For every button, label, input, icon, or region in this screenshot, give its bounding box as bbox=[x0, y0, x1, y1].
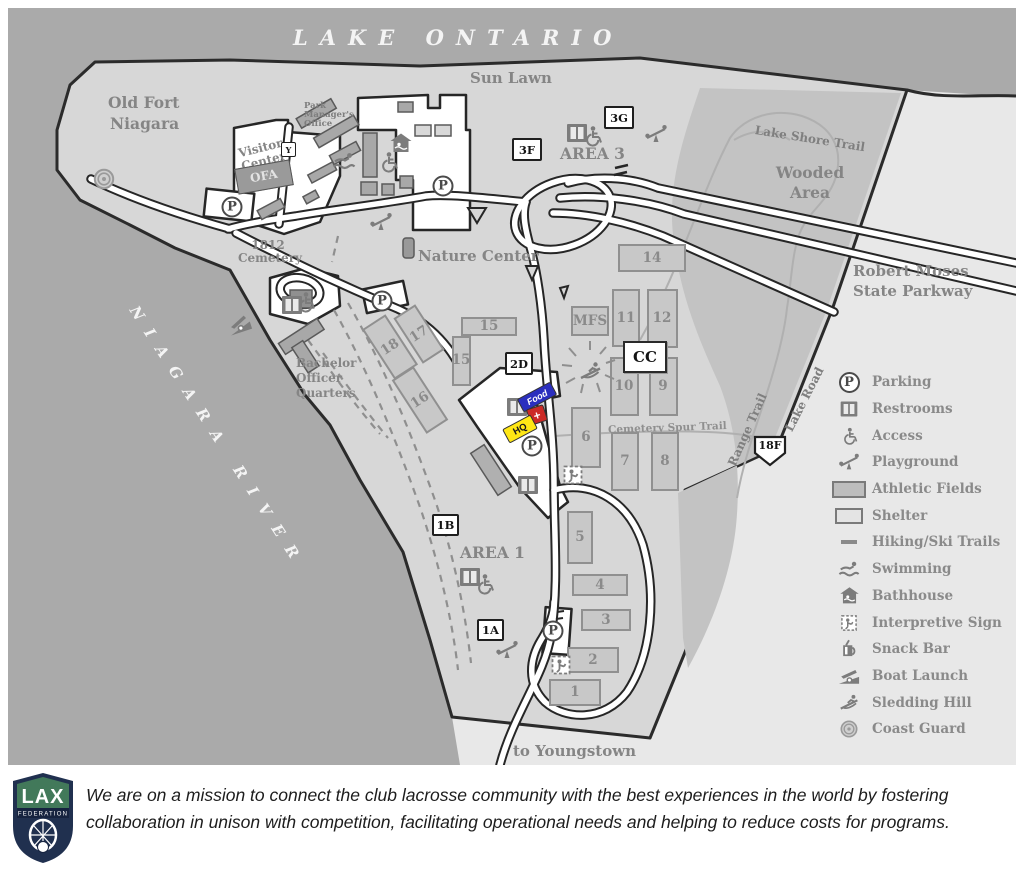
field-number-3: 3 bbox=[601, 612, 610, 628]
snack-bar-icon bbox=[839, 639, 859, 659]
label-wooded-2: Area bbox=[760, 184, 860, 201]
field-number-2: 2 bbox=[588, 652, 597, 668]
label-lake-ontario: LAKE ONTARIO bbox=[293, 26, 623, 49]
area3-restrooms-icon bbox=[567, 124, 587, 142]
field-number-11: 11 bbox=[617, 310, 636, 326]
hiking-ski-trails-icon bbox=[841, 540, 857, 544]
south-restrooms-icon bbox=[518, 476, 538, 494]
legend-item-bathhouse: Bathhouse bbox=[830, 583, 1016, 610]
legend-label: Interpretive Sign bbox=[872, 615, 1002, 631]
legend-item-snack-bar: Snack Bar bbox=[830, 636, 1016, 663]
label-parkway-2: State Parkway bbox=[853, 283, 972, 300]
legend-item-trails: Hiking/Ski Trails bbox=[830, 529, 1016, 556]
field-number-1: 1 bbox=[570, 684, 579, 700]
legend-item-sledding-hill: Sledding Hill bbox=[830, 689, 1016, 716]
field-number-8: 8 bbox=[660, 453, 669, 469]
field-number-6: 6 bbox=[581, 429, 590, 445]
legend-item-parking: P Parking bbox=[830, 369, 1016, 396]
parking-marker-bathhouse: P bbox=[433, 176, 454, 197]
parking-icon: P bbox=[839, 372, 860, 393]
legend-label: Shelter bbox=[872, 508, 927, 524]
legend-item-playground: Playground bbox=[830, 449, 1016, 476]
field-number-15v: 15 bbox=[452, 352, 471, 368]
legend-label: Sledding Hill bbox=[872, 695, 972, 711]
legend-label: Access bbox=[872, 428, 923, 444]
footer: LAX FEDERATION We are on a mission to co… bbox=[0, 765, 1024, 871]
label-to-youngstown: to Youngstown bbox=[513, 743, 636, 760]
label-boq-3: Quarters bbox=[296, 387, 356, 400]
field-number-12: 12 bbox=[653, 310, 672, 326]
legend-label: Parking bbox=[872, 374, 931, 390]
legend-item-athletic-fields: Athletic Fields bbox=[830, 476, 1016, 503]
shelter-swatch bbox=[835, 508, 863, 524]
marker-1a: 1A bbox=[477, 619, 504, 641]
marker-2d: 2D bbox=[505, 352, 533, 375]
bathhouse-icon bbox=[839, 585, 860, 606]
legend-label: Snack Bar bbox=[872, 641, 950, 657]
legend-label: Boat Launch bbox=[872, 668, 968, 684]
mission-statement: We are on a mission to connect the club … bbox=[86, 782, 976, 836]
coast-guard-icon bbox=[839, 719, 859, 739]
marker-3f: 3F bbox=[512, 138, 542, 161]
legend-label: Coast Guard bbox=[872, 721, 966, 737]
parking-marker-hq: P bbox=[522, 436, 543, 457]
legend-item-coast-guard: Coast Guard bbox=[830, 716, 1016, 743]
sledding-hill-icon bbox=[839, 692, 860, 713]
mission-line-1: We are on a mission to connect the club … bbox=[86, 782, 976, 809]
parking-marker-fort: P bbox=[222, 197, 243, 218]
cemetery-restrooms-icon bbox=[282, 296, 302, 314]
label-1812-cemetery-2: Cemetery bbox=[238, 252, 298, 265]
access-icon bbox=[839, 426, 859, 446]
field-number-4: 4 bbox=[595, 577, 604, 593]
legend-label: Playground bbox=[872, 454, 959, 470]
label-ofa: OFA bbox=[249, 168, 278, 186]
label-park-manager-3: Office bbox=[304, 120, 332, 129]
field-number-7: 7 bbox=[620, 453, 629, 469]
park-map-page: LAKE ONTARIO NIAGARA RIVER Sun Lawn Old … bbox=[0, 0, 1024, 871]
logo-wordmark: LAX bbox=[22, 786, 65, 808]
fort-niagara-park-map: LAKE ONTARIO NIAGARA RIVER Sun Lawn Old … bbox=[8, 8, 1016, 765]
map-legend: P Parking Restrooms Access Playground At… bbox=[830, 369, 1016, 743]
interpretive-sign-field6-icon bbox=[565, 467, 582, 484]
label-boq-1: Bachelor bbox=[296, 357, 356, 370]
marker-cc: CC bbox=[623, 341, 667, 373]
interpretive-sign-icon bbox=[839, 613, 859, 633]
playground-icon bbox=[838, 451, 860, 473]
marker-1b: 1B bbox=[432, 514, 459, 536]
legend-item-access: Access bbox=[830, 422, 1016, 449]
logo-subtitle: FEDERATION bbox=[18, 812, 68, 818]
boat-launch-icon bbox=[838, 665, 860, 687]
label-area-1: AREA 1 bbox=[460, 544, 525, 561]
label-sun-lawn: Sun Lawn bbox=[470, 70, 552, 87]
legend-item-restrooms: Restrooms bbox=[830, 396, 1016, 423]
coast-guard-station-icon bbox=[95, 170, 113, 188]
legend-label: Athletic Fields bbox=[872, 481, 982, 497]
label-old-fort-2: Niagara bbox=[110, 115, 179, 132]
restrooms-icon bbox=[839, 399, 859, 419]
field-number-14: 14 bbox=[643, 250, 662, 266]
area1-restrooms-icon bbox=[460, 568, 480, 586]
legend-item-swimming: Swimming bbox=[830, 556, 1016, 583]
label-nature-center: Nature Center bbox=[418, 248, 539, 265]
lax-federation-logo: LAX FEDERATION bbox=[10, 772, 76, 864]
interpretive-sign-field2-icon bbox=[553, 657, 570, 674]
legend-label: Swimming bbox=[872, 561, 951, 577]
legend-label: Bathhouse bbox=[872, 588, 953, 604]
athletic-fields-swatch bbox=[832, 481, 866, 498]
label-boq-2: Officer bbox=[296, 372, 342, 385]
field-number-9: 9 bbox=[658, 378, 667, 394]
legend-item-interpretive-sign: Interpretive Sign bbox=[830, 609, 1016, 636]
legend-label: Hiking/Ski Trails bbox=[872, 534, 1000, 550]
legend-item-shelter: Shelter bbox=[830, 502, 1016, 529]
marker-3g: 3G bbox=[604, 106, 634, 129]
field-number-5: 5 bbox=[575, 529, 584, 545]
field-number-15h: 15 bbox=[480, 318, 499, 334]
label-wooded-1: Wooded bbox=[760, 164, 860, 181]
label-parkway-1: Robert Moses bbox=[853, 263, 969, 280]
marker-18f: 18F bbox=[755, 440, 785, 452]
parking-marker-cemetery: P bbox=[372, 291, 393, 312]
legend-item-boat-launch: Boat Launch bbox=[830, 663, 1016, 690]
label-old-fort-1: Old Fort bbox=[108, 94, 179, 111]
swimming-icon bbox=[838, 558, 860, 580]
marker-mfs: MFS bbox=[573, 313, 607, 329]
mission-line-2: collaboration in unison with competition… bbox=[86, 809, 976, 836]
field-number-10: 10 bbox=[615, 378, 634, 394]
y-building: Y bbox=[281, 142, 296, 157]
legend-label: Restrooms bbox=[872, 401, 953, 417]
parking-marker-area1: P bbox=[543, 621, 564, 642]
label-area-3: AREA 3 bbox=[560, 145, 625, 162]
